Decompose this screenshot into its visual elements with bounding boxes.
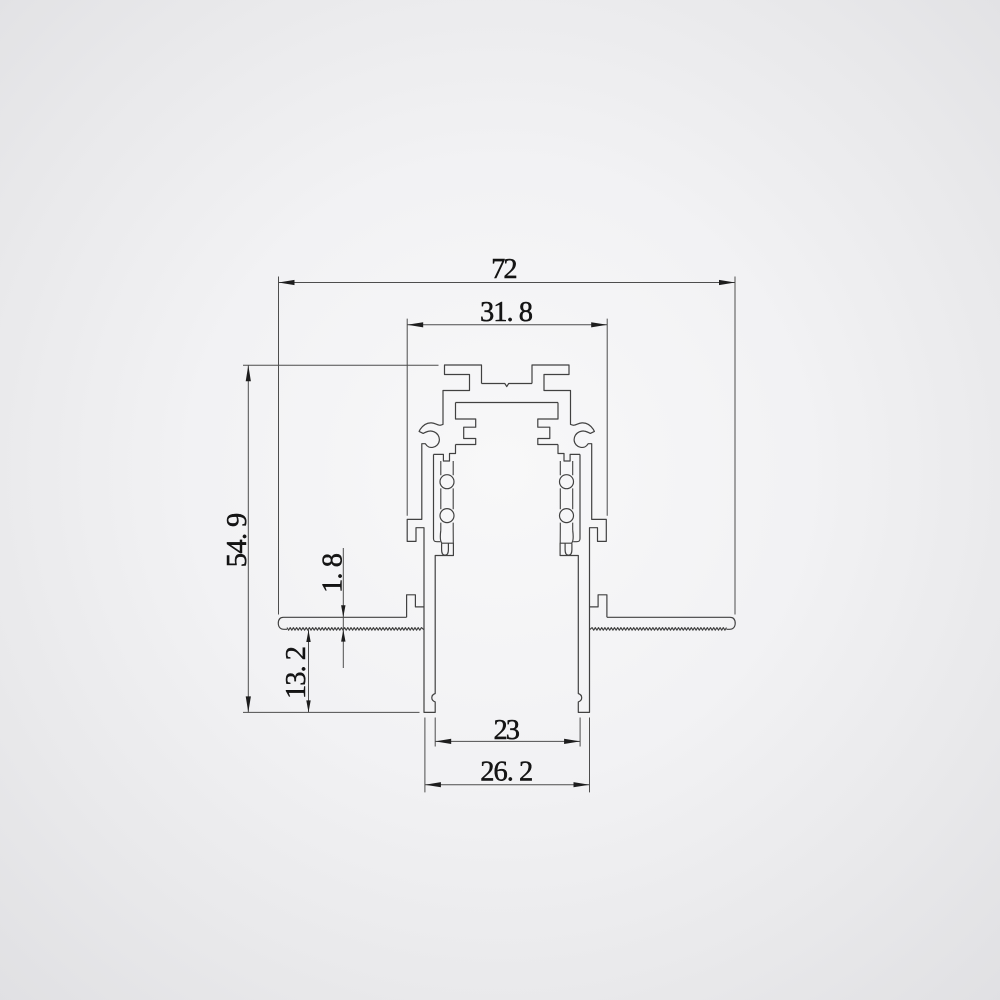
svg-text:1. 8: 1. 8 [318, 553, 349, 593]
svg-text:54. 9: 54. 9 [222, 513, 253, 568]
svg-text:13. 2: 13. 2 [281, 646, 312, 699]
svg-text:72: 72 [491, 254, 518, 285]
svg-text:31. 8: 31. 8 [480, 297, 533, 328]
svg-text:26. 2: 26. 2 [480, 757, 533, 788]
svg-text:23: 23 [493, 715, 520, 746]
